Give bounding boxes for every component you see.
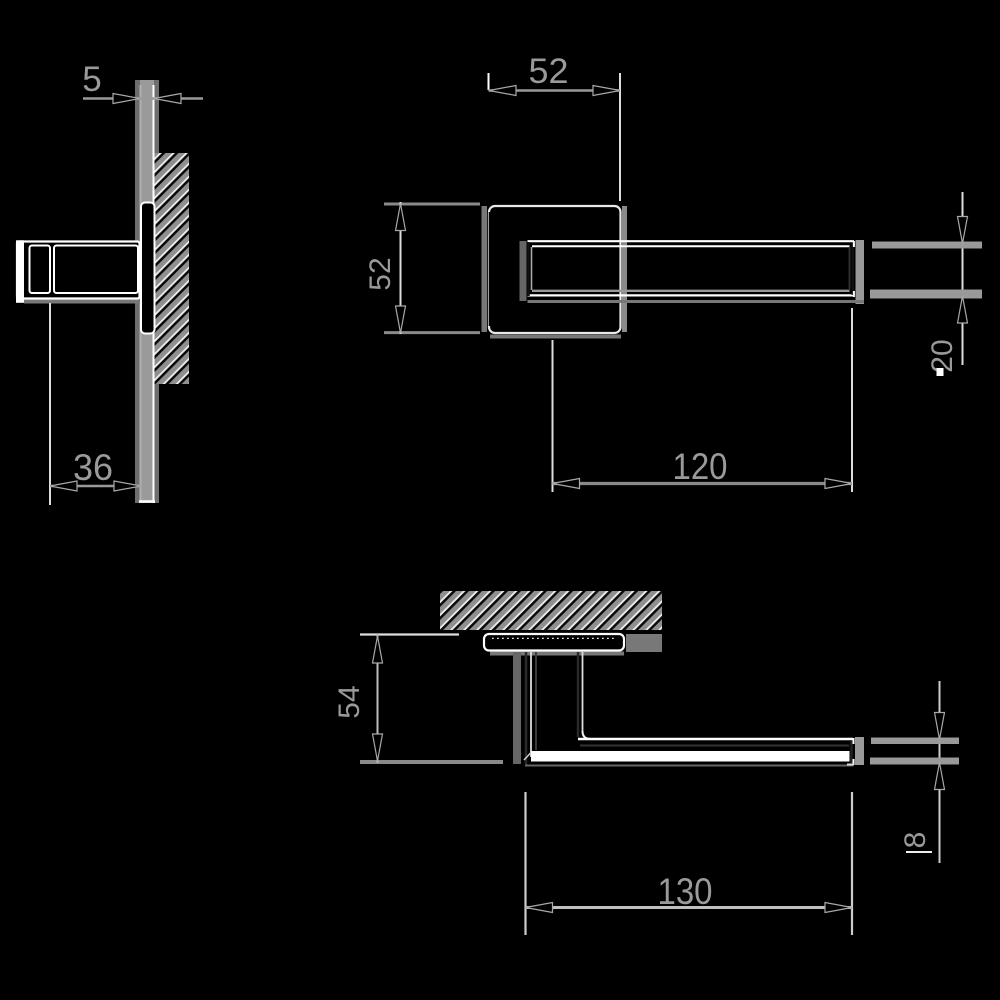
- svg-text:130: 130: [658, 871, 713, 912]
- svg-text:52: 52: [364, 257, 397, 290]
- svg-text:52: 52: [529, 52, 569, 91]
- svg-text:54: 54: [333, 685, 366, 718]
- svg-text:20: 20: [926, 339, 959, 372]
- svg-text:120: 120: [673, 446, 728, 487]
- svg-text:5: 5: [82, 60, 101, 99]
- svg-text:36: 36: [73, 447, 113, 488]
- svg-text:8: 8: [899, 832, 932, 849]
